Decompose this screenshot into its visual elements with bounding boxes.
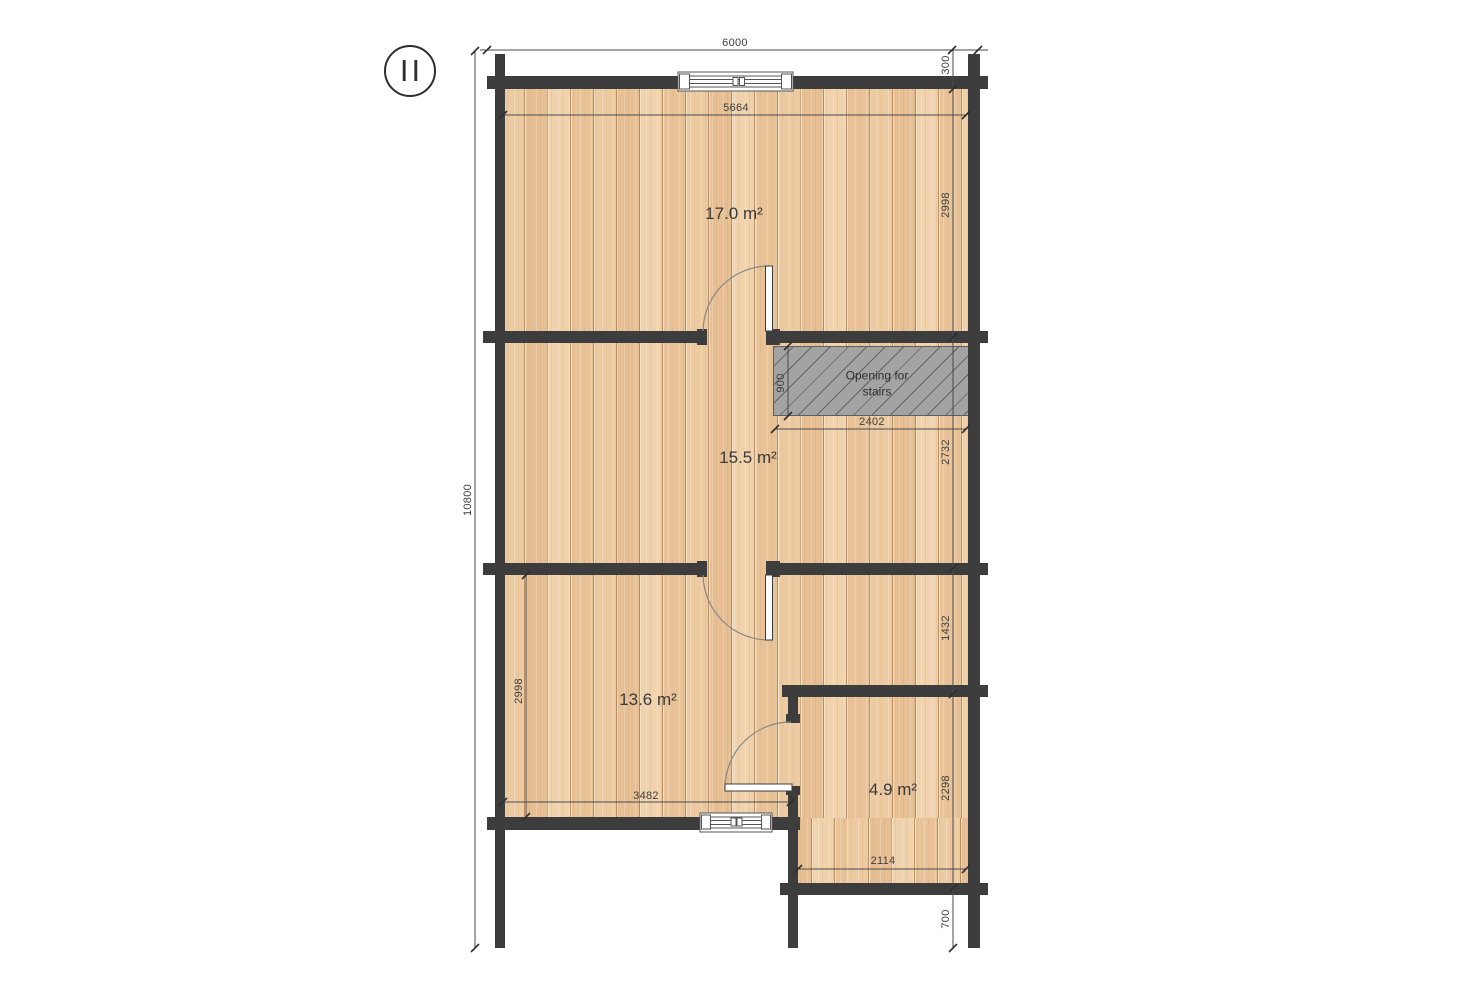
dim-stairs-width: 2402 (859, 416, 885, 428)
room-label-17: 17.0 m² (705, 204, 763, 224)
stairs-opening-label: Opening for stairs (846, 368, 909, 399)
dim-mid-right-height: 2732 (940, 439, 952, 465)
door2-arc (703, 575, 769, 640)
dim-right-end-offset: 300 (940, 55, 952, 74)
door3-arc (725, 722, 791, 787)
stairs-opening-label-line1: Opening for (846, 368, 909, 384)
dim-bottom-inner-width: 3482 (633, 790, 659, 802)
top-window-icon (678, 72, 793, 91)
dim-overall-width: 6000 (722, 37, 748, 49)
room-label-13: 13.6 m² (619, 690, 677, 710)
room-label-15: 15.5 m² (719, 448, 777, 468)
room-label-4: 4.9 m² (869, 780, 917, 800)
floor-plan-canvas: II (0, 0, 1458, 1000)
dim-bottom-right-offset: 700 (940, 909, 952, 928)
stairs-opening-label-line2: stairs (846, 384, 909, 400)
door2-leaf (766, 575, 773, 640)
dim-overall-height: 10800 (462, 484, 474, 516)
dim-small-room-height: 2298 (940, 775, 952, 801)
dim-stairs-height: 900 (775, 373, 787, 392)
door1-leaf (766, 266, 773, 331)
door-arcs (703, 266, 791, 787)
dim-top-inner-width: 5664 (723, 102, 749, 114)
dim-lower-right-height: 1432 (940, 615, 952, 641)
door3-leaf (725, 784, 792, 791)
door1-arc (703, 266, 769, 331)
plan-linework (0, 0, 1458, 1000)
door-leaves (725, 266, 792, 791)
dim-upper-right-height: 2998 (940, 192, 952, 218)
dim-lower-left-height: 2998 (513, 678, 525, 704)
bottom-window-icon (700, 813, 772, 832)
dim-small-room-width: 2114 (871, 855, 896, 867)
